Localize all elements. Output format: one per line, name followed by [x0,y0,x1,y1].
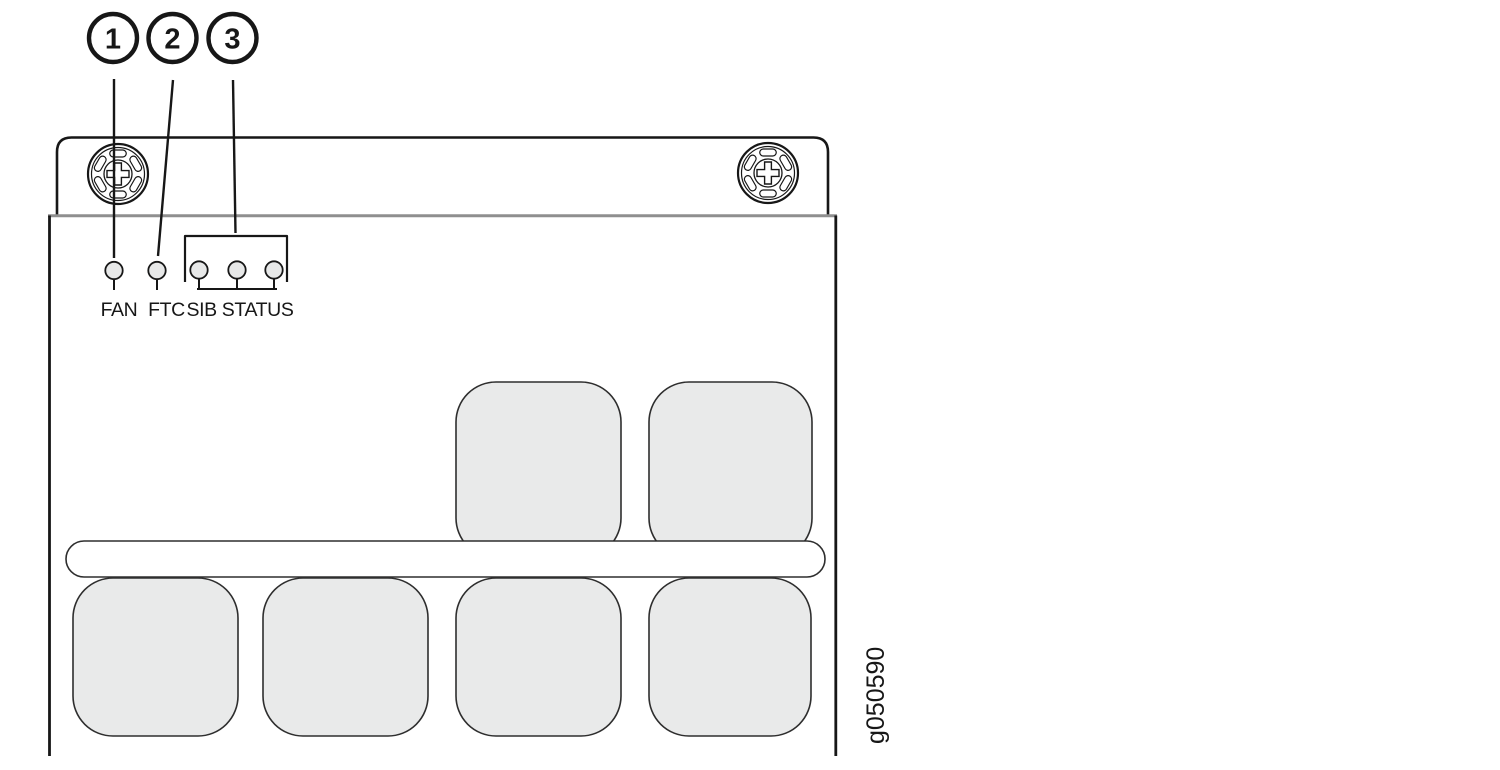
callout-1-number: 1 [105,24,121,56]
sib-status-led-3 [265,261,282,278]
ftc-led-label: FTC [148,299,185,321]
ejector-handle-bar [66,541,825,577]
heatsink-block-bottom-1 [73,578,238,736]
heatsink-block-bottom-3 [456,578,621,736]
thumbscrew-left-icon [88,144,148,204]
callout-2-number: 2 [164,24,180,56]
sib-status-led-2 [228,261,245,278]
ftc-led [148,262,165,279]
callout-3-badge: 3 [209,14,257,62]
sib-status-label: SIB STATUS [187,299,294,321]
fan-led [105,262,122,279]
heatsink-block-top-1 [456,382,621,558]
callout-3-number: 3 [224,24,240,56]
diagram-canvas: 1 2 3 FAN FTC SIB STATUS [0,0,1500,770]
heatsink-block-top-2 [649,382,812,558]
fan-led-label: FAN [101,299,138,321]
sib-status-led-1 [190,261,207,278]
callout-1-badge: 1 [89,14,137,62]
heatsink-block-bottom-4 [649,578,811,736]
heatsink-block-bottom-2 [263,578,428,736]
faceplate-top-strip [57,138,828,216]
sib-status-bracket-bottom [197,280,277,290]
thumbscrew-right-icon [738,143,798,203]
callout-2-badge: 2 [149,14,197,62]
sib-faceplate-diagram: 1 2 3 FAN FTC SIB STATUS [0,0,1500,770]
figure-id-label: g050590 [862,647,890,744]
